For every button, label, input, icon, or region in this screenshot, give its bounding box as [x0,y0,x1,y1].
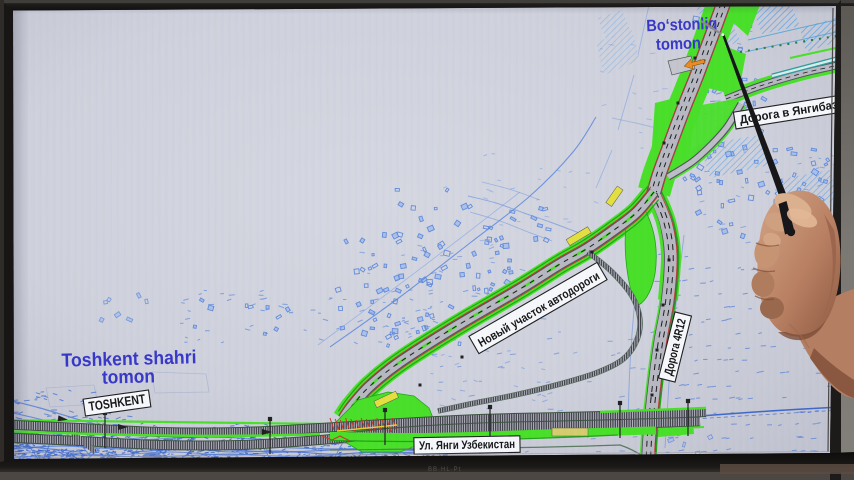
svg-text:BB·HL·Pt: BB·HL·Pt [428,467,461,473]
